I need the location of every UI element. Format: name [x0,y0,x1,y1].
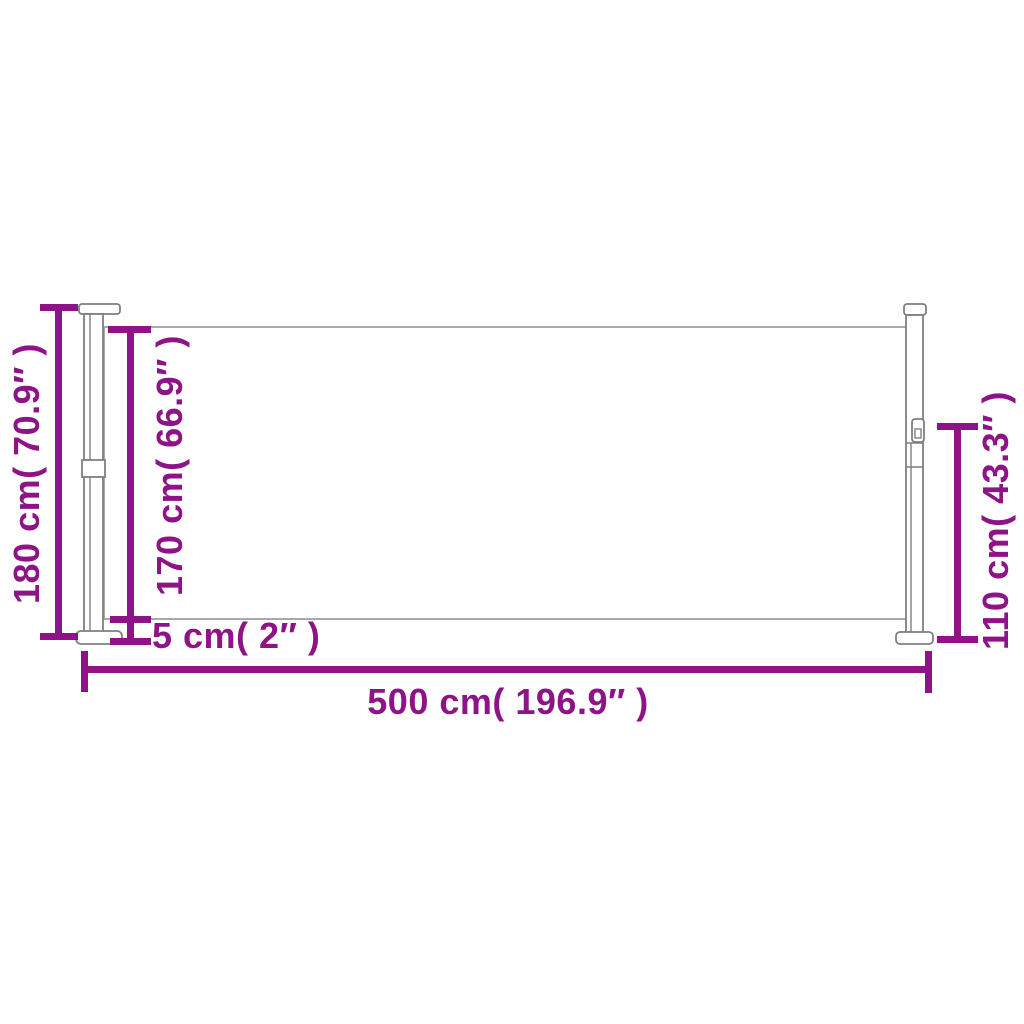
left-post-top-cap [79,304,120,314]
dimension-110-cap-bottom [937,636,978,643]
dimension-500-cap-right [925,651,932,693]
dimension-label-right-height: 110 cm( 43.3″ ) [975,391,1016,650]
right-pole-top-cap [904,304,926,315]
dimension-180-line [55,307,62,638]
dimension-label-total-width: 500 cm( 196.9″ ) [367,681,648,722]
dimension-label-total-height: 180 cm( 70.9″ ) [6,343,47,604]
dimension-110-cap-top [937,423,978,430]
dimension-180-cap-top [40,304,78,311]
dimension-label-screen-height: 170 cm( 66.9″ ) [149,335,190,596]
dimension-110-line [954,426,961,640]
dimension-500-cap-left [81,651,88,692]
dimension-180-cap-bottom [40,633,78,640]
fabric-panel [104,327,908,619]
dimension-5-cap-bottom [110,638,151,645]
dimension-170-line [127,329,134,623]
left-post-joint [82,460,105,477]
dimension-500-line [85,666,932,673]
right-pole-foot [896,632,933,644]
product-dimension-diagram: 180 cm( 70.9″ ) 170 cm( 66.9″ ) 5 cm( 2″… [0,0,1024,1024]
right-pole-column [906,315,923,633]
fabric-panel-rect [104,327,908,619]
dimension-170-cap-top [108,326,151,333]
dimension-label-bottom-gap: 5 cm( 2″ ) [152,615,320,656]
